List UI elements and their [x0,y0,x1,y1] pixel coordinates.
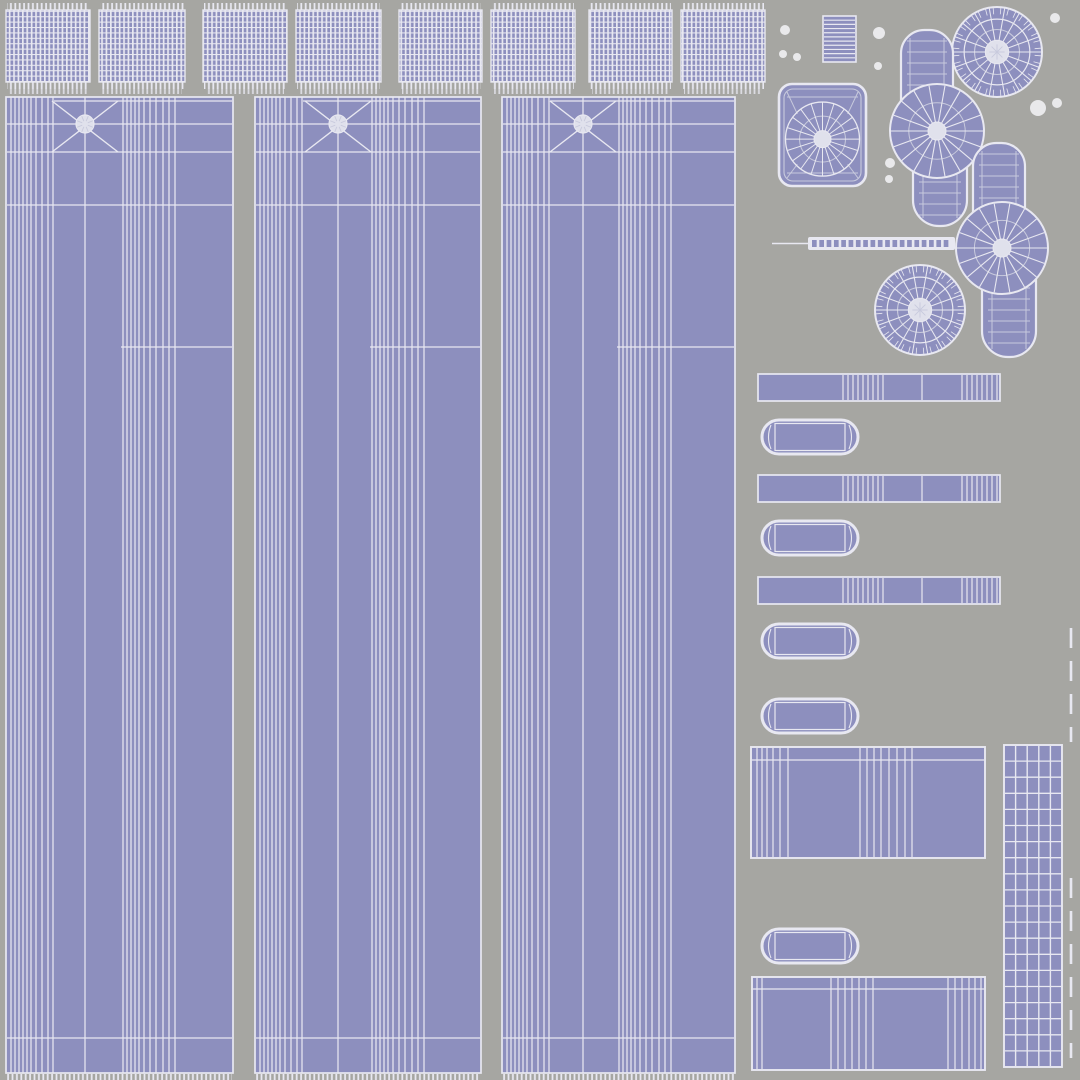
uv-wireframe-sheet [0,0,1080,1080]
uv-layout-canvas [0,0,1080,1080]
vertex-dot [1030,100,1046,116]
panel-rect-2 [752,977,985,1070]
vertex-dot [873,27,885,39]
disc-middle [875,265,965,355]
tread-bar-2 [758,475,1000,502]
pill-5 [762,929,858,963]
top-knurl-patch [589,3,672,94]
disc-top-right [952,7,1042,97]
panel-rect-1 [751,747,985,858]
vertex-dot [779,50,787,58]
vertex-dot [1050,13,1060,23]
uv-column [502,97,735,1080]
uv-column [6,97,233,1080]
striped-patch [823,16,856,62]
vertex-dot [885,175,893,183]
vertex-dot [780,25,790,35]
top-knurl-patch [491,3,575,94]
dashed-strip [772,237,955,250]
vertex-dot [1052,98,1062,108]
top-knurl-patch [296,3,381,94]
peanut-lower [956,143,1048,357]
tread-bar-3 [758,577,1000,604]
pill-3 [762,624,858,658]
pill-4 [762,699,858,733]
tall-grid [1004,745,1062,1067]
vertex-dot [793,53,801,61]
top-knurl-patch [6,3,90,94]
top-knurl-patch [399,3,482,94]
pill-1 [762,420,858,454]
vertex-dot [885,158,895,168]
cap-square [779,84,866,186]
top-knurl-patch [203,3,287,94]
top-knurl-patch [681,3,765,94]
tread-bar-1 [758,374,1000,401]
pill-2 [762,521,858,555]
vertex-dot [874,62,882,70]
uv-column [255,97,481,1080]
top-knurl-patch [99,3,185,94]
